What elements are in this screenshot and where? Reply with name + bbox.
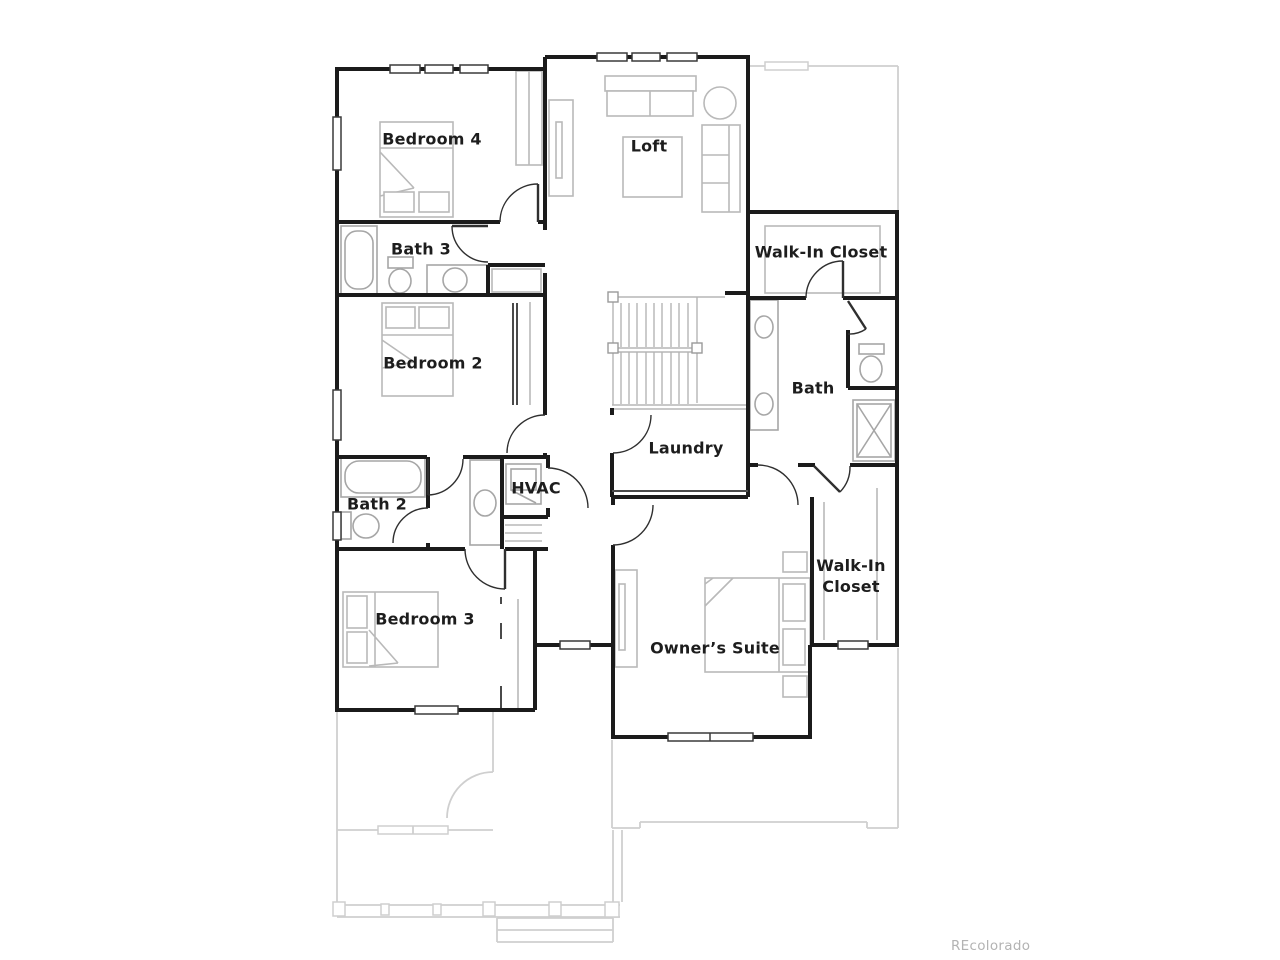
watermark: REcolorado: [951, 938, 1030, 954]
room-label-bath-2: Bath 2: [347, 495, 407, 516]
room-label-loft: Loft: [631, 137, 668, 158]
room-label-owners-suite: Owner’s Suite: [650, 639, 780, 660]
room-label-walk-in-closet-2: Walk-In Closet: [796, 556, 906, 598]
room-label-bedroom-3: Bedroom 3: [375, 610, 475, 631]
room-label-hvac: HVAC: [511, 479, 561, 500]
room-label-bath-3: Bath 3: [391, 240, 451, 261]
room-label-laundry: Laundry: [649, 439, 724, 460]
room-label-bedroom-4: Bedroom 4: [382, 130, 482, 151]
floor-plan-page: Bedroom 4 Loft Bath 3 Walk-In Closet Bed…: [0, 0, 1280, 960]
room-label-bath: Bath: [792, 379, 835, 400]
walk-in-closet-2-line2: Closet: [822, 577, 879, 596]
room-label-walk-in-closet-1: Walk-In Closet: [755, 243, 888, 264]
walk-in-closet-2-line1: Walk-In: [816, 556, 885, 575]
staircase: [608, 292, 748, 409]
room-label-bedroom-2: Bedroom 2: [383, 354, 483, 375]
